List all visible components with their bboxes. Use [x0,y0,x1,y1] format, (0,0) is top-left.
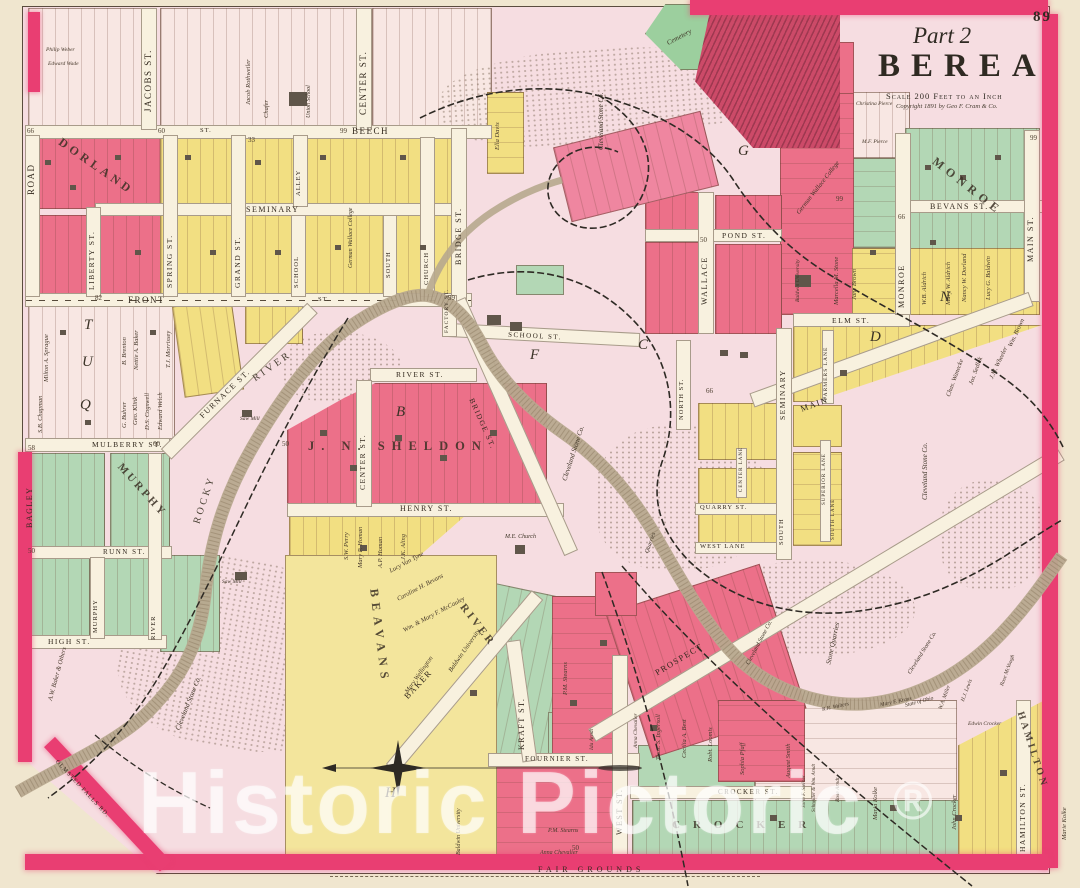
block-letter: N [940,290,950,305]
building-icon [320,430,327,436]
border-top [690,0,1048,15]
street-label: QUARRY ST. [700,505,747,512]
street-label: SEMINARY [779,369,787,420]
street-label: SEMINARY [246,206,299,214]
street-label: BRIDGE ST. [455,207,463,265]
street-label: FARMERS LANE [824,347,830,400]
street-label: NORTH ST. [679,379,686,420]
street-label: MURPHY [93,599,100,633]
block-letter: C [638,338,648,353]
street-label: SOUTH [779,518,786,545]
owner-label: Marie Kolke [1062,807,1069,840]
owner-label: Jane Brown [852,269,859,300]
street-label: ROAD [27,163,36,195]
owner-label: Philip Weber [46,48,75,54]
width-number: 58 [28,445,35,452]
street-label: MONROE [898,264,906,308]
width-number: 99 [836,196,843,203]
owner-label: Geo. Klink [133,397,140,425]
building-icon [840,370,847,376]
street-label: BAGLEY [26,487,34,528]
street-label: WALLACE [701,256,709,305]
owner-label: A.P. Homan [378,537,385,568]
building-icon [600,640,607,646]
feature-label: Cleveland Stone Co. [922,443,929,500]
building-icon [870,250,876,255]
building-icon [487,315,501,325]
width-number: 50 [282,441,289,448]
owner-label: Lucy G. Baldwin [986,256,993,300]
red-block [595,572,637,616]
building-icon [335,245,341,250]
building-icon [289,92,307,106]
owner-label: Marcella M. Stone [834,257,841,305]
yellow-block [487,92,524,174]
building-icon [60,330,66,335]
building-icon [740,352,748,358]
owner-label: G. Buhrer [122,402,129,428]
width-number: 66 [898,214,905,221]
watermark-registered-icon: ® [893,770,933,832]
street-label: SOUTH LANE [831,499,836,540]
map-scale: Scale 200 Feet to an Inch [886,92,1003,101]
border-right [1042,14,1058,868]
red-block [99,215,162,297]
owner-label: S.B. Chapman [38,396,45,433]
building-icon [45,160,51,165]
owner-label: Jacob Rothweiler [246,59,253,105]
red-block [645,242,699,334]
street-label: HIGH ST. [48,638,91,646]
border-mark [28,12,40,92]
yellow-block [160,215,452,297]
owner-label: S.W. Perry [344,532,351,560]
street-label: HAMILTON ST. [1019,783,1027,852]
building-icon [510,322,522,331]
page-number: 89 [1033,10,1052,25]
feature-label: Saw Mill [222,580,242,586]
building-icon [1000,770,1007,776]
owner-label: P.M. Stearns [563,662,570,695]
building-icon [115,155,121,160]
feature-label: German Wallace College [348,208,354,268]
street-label: GRAND ST. [234,236,242,288]
owner-label: Ida Arndt [590,729,596,750]
owner-label: B. Brenton [122,337,129,365]
street-label: RIVER [151,616,158,641]
building-icon [440,455,447,461]
owner-label: D.S. Cogswell [145,393,152,430]
street-label: ALLEY [296,170,303,196]
feature-label: M.E. Church [505,534,536,540]
block-letter: G [738,144,749,159]
block-letter: D [870,330,881,345]
owner-label: Chafer [264,100,271,118]
width-number: 82 [95,295,102,302]
building-icon [210,250,216,255]
building-icon [135,250,141,255]
width-number: 99 [340,128,347,135]
owner-label: Milton A. Sprague [44,334,51,382]
owner-label: Edwin Crocker [968,722,1001,728]
building-icon [515,545,525,554]
margin-dashes [330,876,760,877]
owner-label: W.B. Aldrich [922,272,929,305]
width-number: 50 [28,548,35,555]
street-label: LIBERTY ST. [88,231,96,290]
building-icon [570,700,577,706]
feature-label: Saw Mill [240,417,260,423]
building-icon [150,330,156,335]
building-icon [350,465,357,471]
green-block [28,453,105,547]
block-letter: F [530,348,539,363]
building-icon [995,155,1001,160]
building-icon [930,240,936,245]
green-block [905,212,1040,250]
owner-label: Maria Kolke [873,787,880,820]
map-part-label: Part 2 [913,24,971,47]
block-letter: U [82,355,93,370]
width-number: 99 [1030,135,1037,142]
width-number: 66 [27,128,34,135]
street-label: CENTER LANE [739,447,744,492]
owner-label: T.J. Morrissey [166,331,173,368]
street-label: SPRING ST. [166,234,174,288]
street-label: MAIN ST. [1027,216,1035,262]
green-block [103,558,150,640]
feature-label: Union School [306,85,312,118]
building-icon [400,155,406,160]
building-icon [420,245,426,250]
building-icon [70,185,76,190]
street-label: CHURCH [424,252,431,285]
building-icon [275,250,281,255]
street-river-v [148,453,162,640]
owner-label: Nancy W. Dorland [962,254,969,302]
street-road [25,135,40,297]
width-number: 66 [706,388,713,395]
street-label: FRONT [128,296,165,305]
owner-label: Nettie A. Baker [134,330,141,370]
building-icon [85,420,91,425]
street-label: BEECH [352,127,389,136]
border-bottom [25,854,1048,870]
subdivision-label: J. N. SHELDON [308,440,488,453]
lot-block [28,8,145,128]
owner-label: Edward Wade [48,62,79,68]
owner-label: J.K. Aling [401,534,408,560]
width-number: 60 [153,441,160,448]
block-letter: Q [80,398,91,413]
red-block [715,244,782,334]
street-label: ST. [318,297,330,304]
building-icon [255,160,261,165]
building-icon [320,155,326,160]
street-label: SCHOOL [294,256,301,288]
width-number: 99 [448,295,455,302]
green-block [28,558,90,640]
building-icon [185,155,191,160]
green-block [160,555,220,652]
owner-label: Ella Davis [495,122,502,150]
street-label: HENRY ST. [400,505,453,513]
street-label: POND ST. [722,232,766,240]
street-label: RIVER ST. [396,371,444,379]
width-number: 50 [700,237,707,244]
street-label: CENTER ST. [359,51,368,115]
lot-block [160,8,358,128]
owner-label: John Crocker [952,795,959,830]
owner-label: Edward Welch [158,392,165,430]
width-number: 33 [248,137,255,144]
building-icon [470,690,477,696]
yellow-block [793,405,842,447]
owner-label: M.F. Pierce [862,140,888,146]
street-label: JACOBS ST. [144,49,153,112]
feature-label: Baldwin University [796,259,802,302]
owner-label: Christina Pierce [856,102,892,108]
street-label: KRAFT ST. [518,698,526,750]
street-label: FAIR GROUNDS [538,866,644,874]
map-title: BEREA [878,50,1047,83]
block-letter: T [84,318,92,333]
atlas-map-page: 89 Part 2 BEREA Scale 200 Feet to an Inc… [0,0,1080,888]
map-copyright: Copyright 1891 by Geo F. Cram & Co. [896,104,998,111]
green-block [516,265,564,295]
feature-label: Cleveland Stone Co. [598,93,605,150]
owner-label: Mary P. Homan [358,527,365,568]
street-label: ELM ST. [832,317,870,325]
owner-label: Anna Chevalier [634,713,640,748]
street-label: SUPERIOR LANE [822,453,827,505]
watermark-text: Historic Pictoric [138,752,864,854]
street-label: WEST LANE [700,544,746,551]
building-icon [720,350,728,356]
street-label: RUNN ST. [103,549,146,556]
street-label: SOUTH [386,251,393,278]
width-number: 60 [158,128,165,135]
block-letter: B [396,405,405,420]
red-block [715,195,782,233]
street-label: ST. [200,128,212,135]
